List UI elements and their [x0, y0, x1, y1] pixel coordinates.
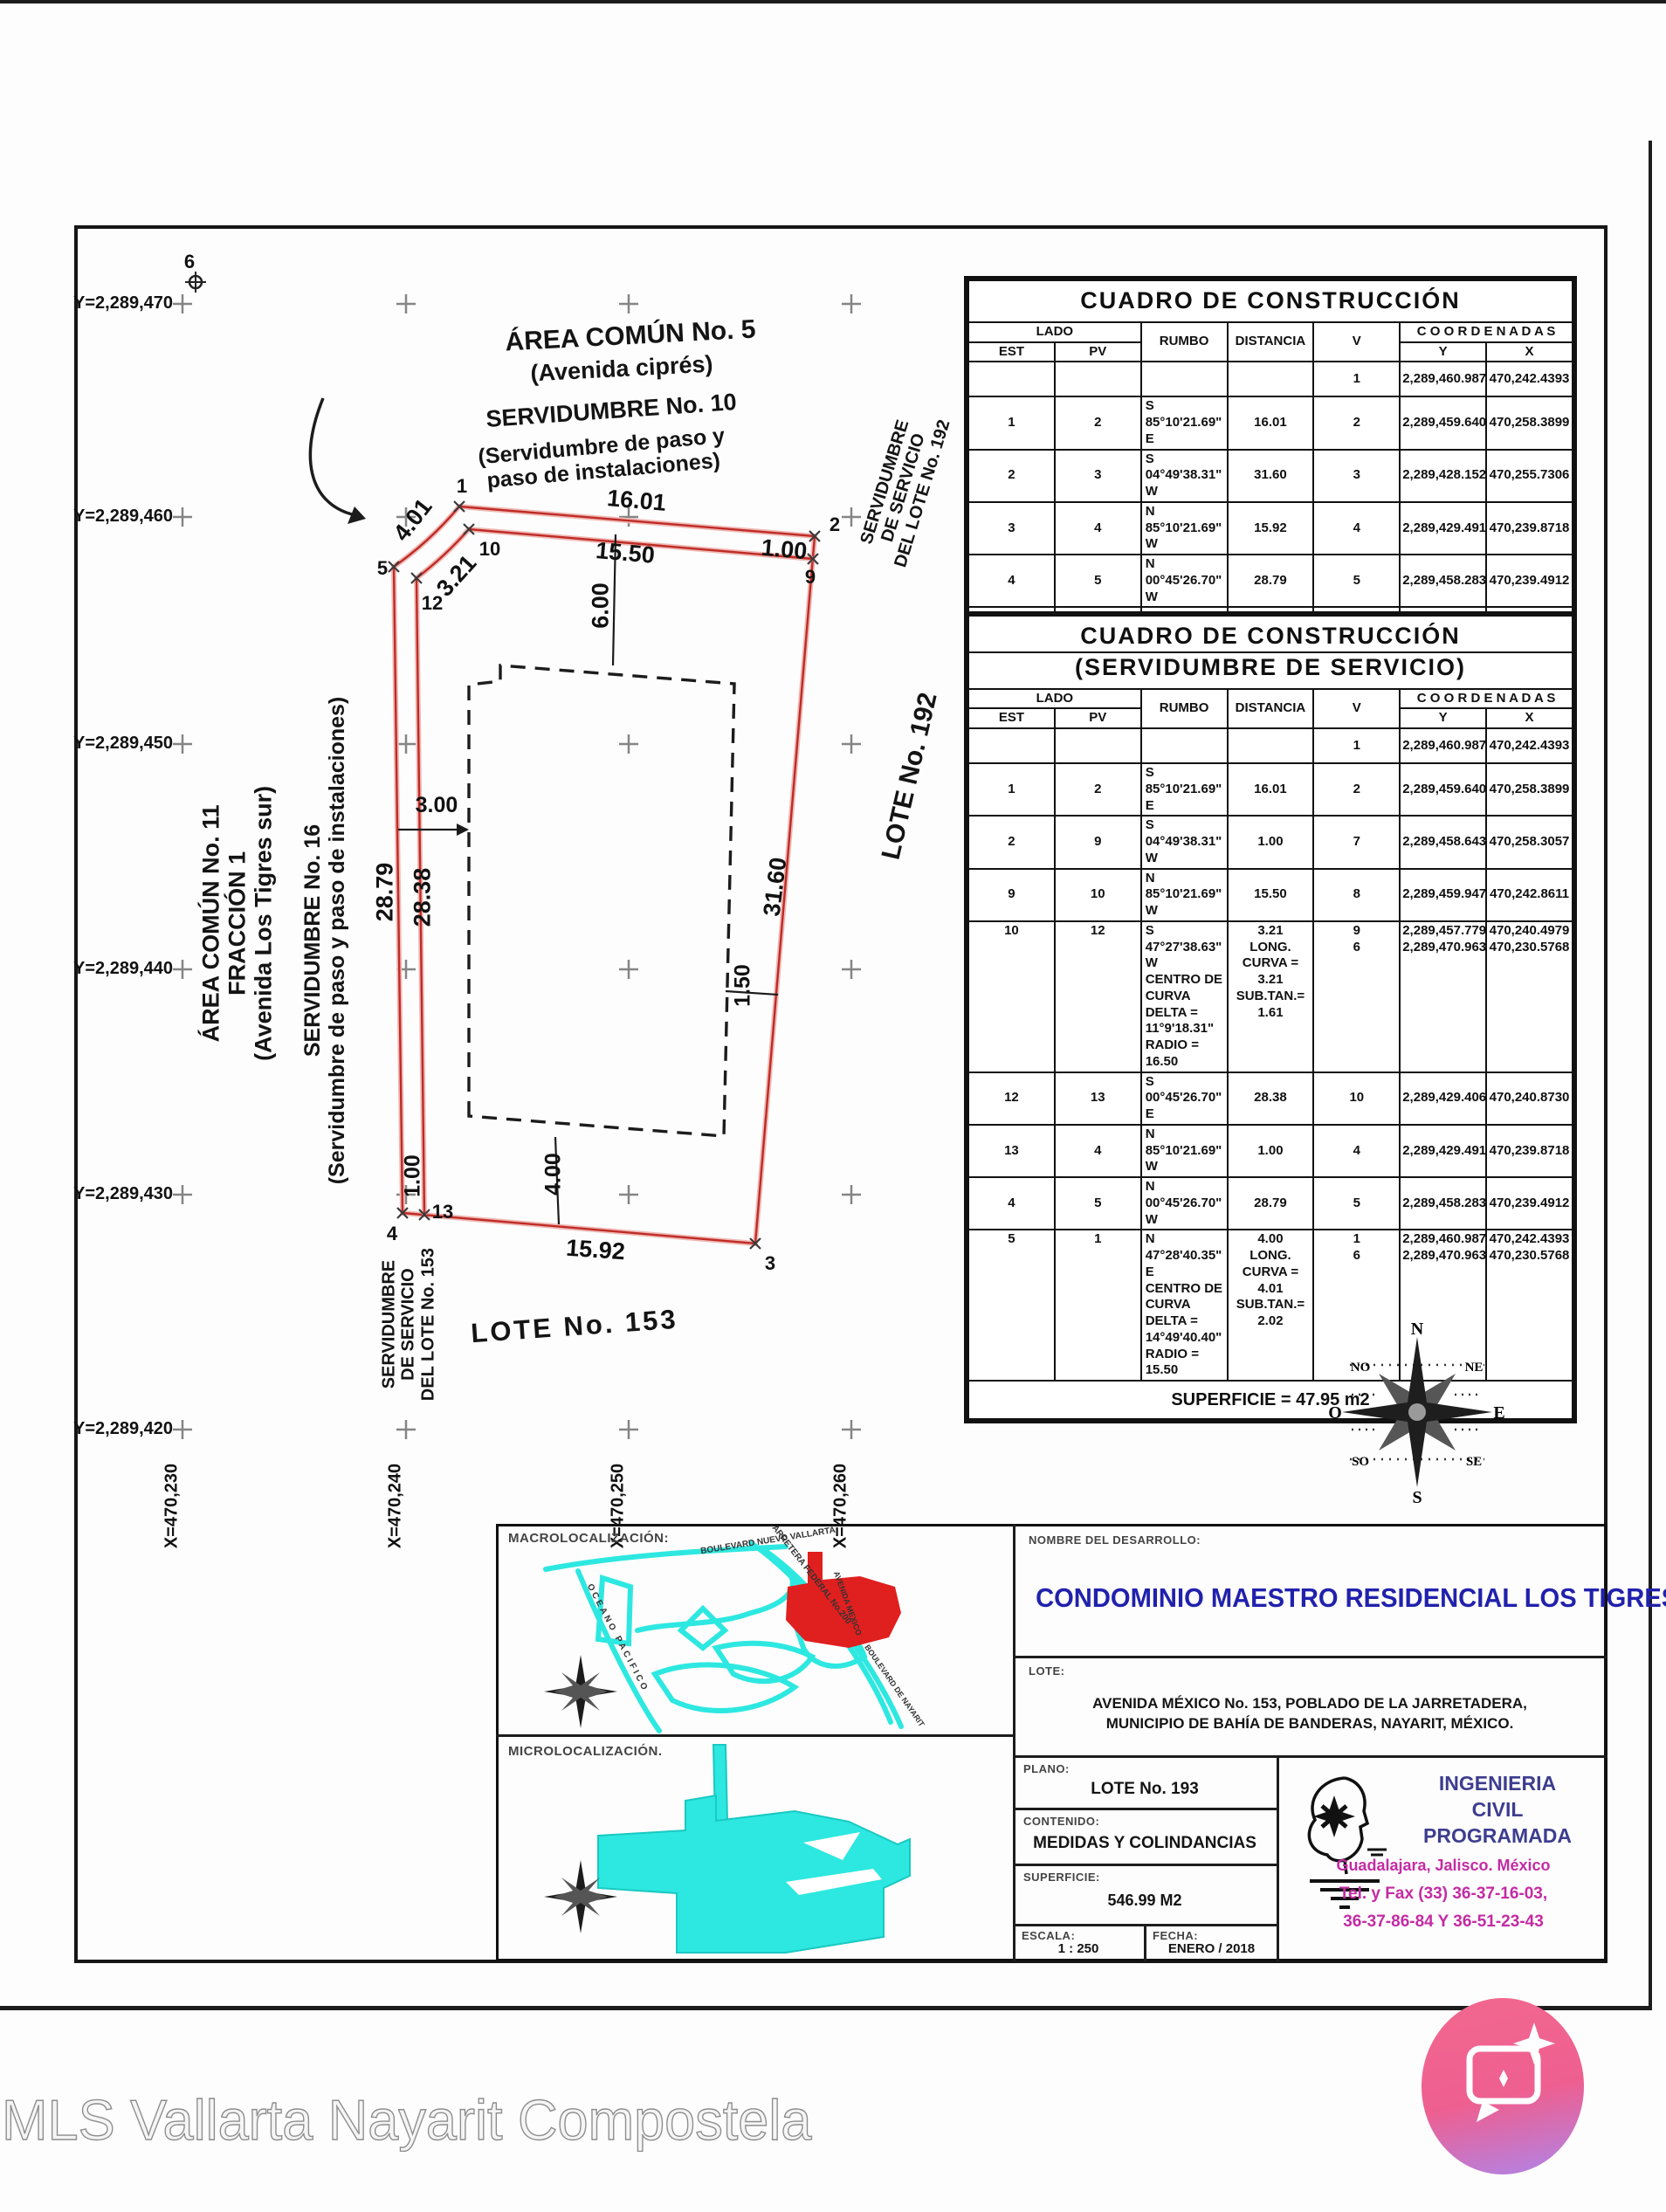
cell: S 85°10'21.69" E	[1141, 763, 1228, 816]
cell: 2,289,457.7795 2,289,470.9636	[1400, 921, 1486, 1072]
cell: 5	[1055, 555, 1141, 607]
cell: 5	[1055, 1177, 1141, 1230]
vertex-6: 6	[179, 251, 200, 273]
cell: 5	[1313, 1177, 1400, 1230]
table-row: 34 N 85°10'21.69" W15.92 42,289,429.4915…	[968, 502, 1573, 555]
cell	[1141, 728, 1228, 763]
cell: 2,289,429.4915	[1400, 1125, 1486, 1177]
vertex-10: 10	[477, 538, 503, 561]
chat-button[interactable]	[1422, 1998, 1584, 2174]
y-axis-label: Y=2,289,460	[51, 506, 173, 527]
cell: S 85°10'21.69" E	[1141, 396, 1228, 449]
cell: N 85°10'21.69" W	[1141, 1125, 1228, 1177]
firm-name-3: PROGRAMADA	[1397, 1825, 1598, 1848]
compass-rose: N S E O NO NE SO SE	[1325, 1320, 1509, 1506]
vertex-9: 9	[800, 566, 821, 589]
table2-subtitle: (SERVIDUMBRE DE SERVICIO)	[968, 652, 1573, 689]
cell	[1228, 728, 1314, 763]
contenido-label: CONTENIDO:	[1023, 1815, 1099, 1828]
cell: 470,240.4979 470,230.5768	[1486, 921, 1573, 1072]
cell: 4.00 LONG. CURVA = 4.01 SUB.TAN.= 2.02	[1228, 1230, 1314, 1381]
chat-bubble-icon	[1422, 1998, 1584, 2174]
nombre-desarrollo-label: NOMBRE DEL DESARROLLO:	[1029, 1533, 1201, 1547]
cell: 470,240.8730	[1486, 1072, 1573, 1125]
firm-name-1: INGENIERIA	[1397, 1773, 1598, 1795]
cell: 28.38	[1228, 1072, 1314, 1125]
watermark-text: MLS Vallarta Nayarit Compostela	[2, 2087, 811, 2153]
cell: S 00°45'26.70" E	[1141, 1072, 1228, 1125]
col-x: X	[1486, 708, 1573, 728]
cell: 4	[1055, 502, 1141, 555]
cell: 2,289,458.2835	[1400, 1177, 1486, 1230]
servidumbre-line-halo	[416, 529, 813, 1215]
servidumbre-line	[416, 529, 813, 1215]
table1-title: CUADRO DE CONSTRUCCIÓN	[968, 280, 1573, 322]
lote-address: AVENIDA MÉXICO No. 153, POBLADO DE LA JA…	[1030, 1694, 1589, 1734]
compass-so: SO	[1352, 1455, 1369, 1469]
dim-15-92: 15.92	[560, 1234, 631, 1266]
superficie-label: SUPERFICIE:	[1023, 1871, 1100, 1884]
cell: S 47°27'38.63" W CENTRO DE CURVA DELTA =…	[1141, 921, 1228, 1072]
firm-name-2: CIVIL	[1397, 1799, 1598, 1822]
table-row: 910 N 85°10'21.69" W15.50 82,289,459.947…	[968, 869, 1573, 921]
cell: 3.21 LONG. CURVA = 3.21 SUB.TAN.= 1.61	[1228, 921, 1314, 1072]
table2-title: CUADRO DE CONSTRUCCIÓN	[968, 616, 1573, 652]
firm-phone-1: Tel. y Fax (33) 36-37-16-03,	[1284, 1885, 1603, 1903]
cell	[1055, 362, 1141, 396]
cell: 4	[968, 1177, 1055, 1230]
compass-ne: NE	[1465, 1361, 1484, 1375]
escala-label: ESCALA:	[1022, 1929, 1075, 1942]
cell	[1141, 362, 1228, 396]
lote-label: LOTE:	[1029, 1664, 1065, 1678]
vertex-3: 3	[760, 1252, 781, 1275]
plano-value: LOTE No. 193	[1013, 1780, 1277, 1798]
y-axis-label: Y=2,289,470	[51, 293, 173, 314]
dim-1-00-bottom: 1.00	[401, 1150, 426, 1202]
cell: 2,289,458.2835	[1400, 555, 1486, 607]
col-y: Y	[1400, 708, 1486, 728]
cell: 13	[968, 1125, 1055, 1177]
col-pv: PV	[1055, 342, 1141, 362]
pointer-arrow	[310, 398, 352, 514]
compass-e: E	[1493, 1403, 1504, 1423]
table-row: 23 S 04°49'38.31" W31.60 32,289,428.1521…	[968, 450, 1573, 502]
cell: 1.00	[1228, 816, 1314, 868]
cell: 2	[1313, 763, 1400, 816]
survey-plan-page: Y=2,289,470 Y=2,289,460 Y=2,289,450 Y=2,…	[0, 0, 1666, 2212]
cell: 9	[968, 869, 1055, 921]
cell: 1	[1313, 728, 1400, 763]
table-row: 12 S 85°10'21.69" E16.01 22,289,459.6401…	[968, 763, 1573, 816]
cell: 2	[1055, 396, 1141, 449]
col-y: Y	[1400, 342, 1486, 362]
cell: 3	[968, 502, 1055, 555]
cell: 470,258.3057	[1486, 816, 1573, 868]
y-axis-label: Y=2,289,420	[51, 1419, 173, 1439]
col-est: EST	[968, 708, 1055, 728]
cell: 470,242.4393	[1486, 728, 1573, 763]
col-coordenadas: C O O R D E N A D A S	[1400, 322, 1573, 342]
table-row: 45 N 00°45'26.70" W28.79 52,289,458.2835…	[968, 555, 1573, 607]
servidumbre-16-label: SERVIDUMBRE No. 16 (Servidumbre de paso …	[300, 600, 349, 1281]
vertex-13: 13	[430, 1201, 456, 1223]
cell: 1	[1313, 362, 1400, 396]
col-x: X	[1486, 342, 1573, 362]
building-pad-dashed	[469, 665, 734, 1136]
cell: 15.50	[1228, 869, 1314, 921]
cell: 470,258.3899	[1486, 396, 1573, 449]
cell: 4	[1055, 1125, 1141, 1177]
cell: 4	[1313, 1125, 1400, 1177]
cell: 1	[1055, 1230, 1141, 1381]
cell: N 00°45'26.70" W	[1141, 555, 1228, 607]
cell: 16.01	[1228, 763, 1314, 816]
cell: 7	[1313, 816, 1400, 868]
cell: 15.92	[1228, 502, 1314, 555]
contenido-value: MEDIDAS Y COLINDANCIAS	[1013, 1834, 1277, 1852]
table-row: 1012 S 47°27'38.63" W CENTRO DE CURVA DE…	[968, 921, 1573, 1072]
servidumbre-153-label: SERVIDUMBRE DE SERVICIO DEL LOTE No. 153	[379, 1220, 437, 1430]
vertex-12: 12	[419, 592, 445, 615]
cell: N 00°45'26.70" W	[1141, 1177, 1228, 1230]
fecha-label: FECHA:	[1153, 1929, 1198, 1942]
escala-value: 1 : 250	[1013, 1942, 1144, 1957]
cell: 9 6	[1313, 921, 1400, 1072]
cell: S 04°49'38.31" W	[1141, 450, 1228, 502]
cell: 470,255.7306	[1486, 450, 1573, 502]
cell: 5	[1313, 555, 1400, 607]
cell: 470,239.4912	[1486, 555, 1573, 607]
col-lado: LADO	[968, 322, 1141, 342]
cell: 470,242.8611	[1486, 869, 1573, 921]
cell: 2	[1313, 396, 1400, 449]
compass-s: S	[1412, 1488, 1422, 1506]
cell: N 47°28'40.35" E CENTRO DE CURVA DELTA =…	[1141, 1230, 1228, 1381]
dim-4-00: 4.00	[541, 1148, 567, 1201]
cell: S 04°49'38.31" W	[1141, 816, 1228, 868]
cell: 2,289,458.6436	[1400, 816, 1486, 868]
cell: 2,289,428.1521	[1400, 450, 1486, 502]
macro-map: BOULEVARD NUEVO VALLARTA CARRETERA FEDER…	[498, 1526, 1011, 1734]
cell: 10	[1313, 1072, 1400, 1125]
cell: 28.79	[1228, 1177, 1314, 1230]
cell: 2	[968, 816, 1055, 868]
col-pv: PV	[1055, 708, 1141, 728]
cuadro-servidumbre-table: CUADRO DE CONSTRUCCIÓN (SERVIDUMBRE DE S…	[964, 611, 1577, 1423]
vertex-5: 5	[372, 557, 393, 580]
plano-label: PLANO:	[1023, 1762, 1070, 1775]
nombre-desarrollo: CONDOMINIO MAESTRO RESIDENCIAL LOS TIGRE…	[1036, 1582, 1586, 1614]
vertex-4: 4	[382, 1223, 403, 1245]
page-bottom-border	[0, 2006, 1652, 2010]
cell: 16.01	[1228, 396, 1314, 449]
cell: 31.60	[1228, 450, 1314, 502]
y-axis-label: Y=2,289,450	[51, 734, 173, 754]
sparkle-icon	[1513, 2022, 1555, 2064]
cell	[968, 362, 1055, 396]
superficie-value: 546.99 M2	[1013, 1892, 1277, 1909]
col-est: EST	[968, 342, 1055, 362]
cell: 3	[1055, 450, 1141, 502]
x-axis-label: X=470,230	[162, 1441, 182, 1572]
fecha-value: ENERO / 2018	[1144, 1942, 1279, 1957]
vertex-2: 2	[824, 513, 845, 536]
firm-phone-2: 36-37-86-84 Y 36-51-23-43	[1284, 1912, 1603, 1931]
cell: 2,289,429.4069	[1400, 1072, 1486, 1125]
cell: 2,289,459.9479	[1400, 869, 1486, 921]
cell: 470,242.4393	[1486, 362, 1573, 396]
cell	[1228, 362, 1314, 396]
page-top-border	[0, 0, 1666, 3]
cell: 2,289,459.6401	[1400, 763, 1486, 816]
cell: 5	[968, 1230, 1055, 1381]
cell: 2,289,460.9871	[1400, 728, 1486, 763]
cell: 2,289,429.4915	[1400, 502, 1486, 555]
col-rumbo: RUMBO	[1141, 689, 1228, 729]
dim-28-38: 28.38	[410, 863, 437, 933]
cell: 1	[968, 396, 1055, 449]
col-v: V	[1313, 322, 1400, 362]
curve-center-marker	[185, 272, 206, 293]
dim-1-50: 1.50	[731, 960, 756, 1012]
compass-o: O	[1328, 1403, 1342, 1423]
col-distancia: DISTANCIA	[1228, 689, 1314, 729]
x-axis-label: X=470,240	[386, 1441, 406, 1572]
table-row: 134 N 85°10'21.69" W1.00 42,289,429.4915…	[968, 1125, 1573, 1177]
table-row: 12,289,460.9871 470,242.4393	[968, 362, 1573, 396]
cell: 470,239.4912	[1486, 1177, 1573, 1230]
y-axis-label: Y=2,289,440	[51, 959, 173, 979]
table-row: 1213 S 00°45'26.70" E28.38 102,289,429.4…	[968, 1072, 1573, 1125]
micro-map	[498, 1738, 1011, 1959]
cell: N 85°10'21.69" W	[1141, 502, 1228, 555]
dim-28-79: 28.79	[372, 858, 399, 927]
cell: 13	[1055, 1072, 1141, 1125]
cell: 28.79	[1228, 555, 1314, 607]
cell: 470,239.8718	[1486, 1125, 1573, 1177]
table-row: 12,289,460.9871 470,242.4393	[968, 728, 1573, 763]
cell	[968, 728, 1055, 763]
cell: 12	[1055, 921, 1141, 1072]
dim-3-00: 3.00	[406, 793, 467, 818]
cell: 12	[968, 1072, 1055, 1125]
table-row: 29 S 04°49'38.31" W1.00 72,289,458.6436 …	[968, 816, 1573, 868]
cell: 2,289,459.6401	[1400, 396, 1486, 449]
cell: 4	[968, 555, 1055, 607]
compass-se: SE	[1466, 1455, 1482, 1469]
cell: N 85°10'21.69" W	[1141, 869, 1228, 921]
cell: 1.00	[1228, 1125, 1314, 1177]
cell: 8	[1313, 869, 1400, 921]
cell: 470,239.8718	[1486, 502, 1573, 555]
cell: 3	[1313, 450, 1400, 502]
cell: 10	[1055, 869, 1141, 921]
dim-6-00: 6.00	[588, 571, 615, 641]
col-rumbo: RUMBO	[1141, 322, 1228, 362]
firm-city: Guadalajara, Jalisco. México	[1284, 1857, 1603, 1874]
cell: 2,289,460.9871	[1400, 362, 1486, 396]
cell: 10	[968, 921, 1055, 1072]
col-lado: LADO	[968, 689, 1141, 709]
table-row: 45 N 00°45'26.70" W28.79 52,289,458.2835…	[968, 1177, 1573, 1230]
page-right-border	[1649, 141, 1652, 2010]
compass-no: NO	[1351, 1361, 1371, 1375]
vertex-1: 1	[451, 475, 472, 498]
cell	[1055, 728, 1141, 763]
cell: 470,258.3899	[1486, 763, 1573, 816]
cell: 1	[968, 763, 1055, 816]
dim-arrowhead	[457, 823, 469, 836]
table-row: 12 S 85°10'21.69" E16.01 22,289,459.6401…	[968, 396, 1573, 449]
col-distancia: DISTANCIA	[1228, 322, 1314, 362]
col-coordenadas: C O O R D E N A D A S	[1400, 689, 1573, 709]
cell: 2	[968, 450, 1055, 502]
area-comun-11-label: ÁREA COMÚN No. 11 FRACCIÓN 1 (Avenida Lo…	[198, 679, 278, 1168]
y-axis-label: Y=2,289,430	[51, 1184, 173, 1204]
cell: 4	[1313, 502, 1400, 555]
cell: 9	[1055, 816, 1141, 868]
col-v: V	[1313, 689, 1400, 729]
macro-compass-icon	[544, 1655, 617, 1728]
cell: 2	[1055, 763, 1141, 816]
compass-n: N	[1411, 1320, 1424, 1339]
